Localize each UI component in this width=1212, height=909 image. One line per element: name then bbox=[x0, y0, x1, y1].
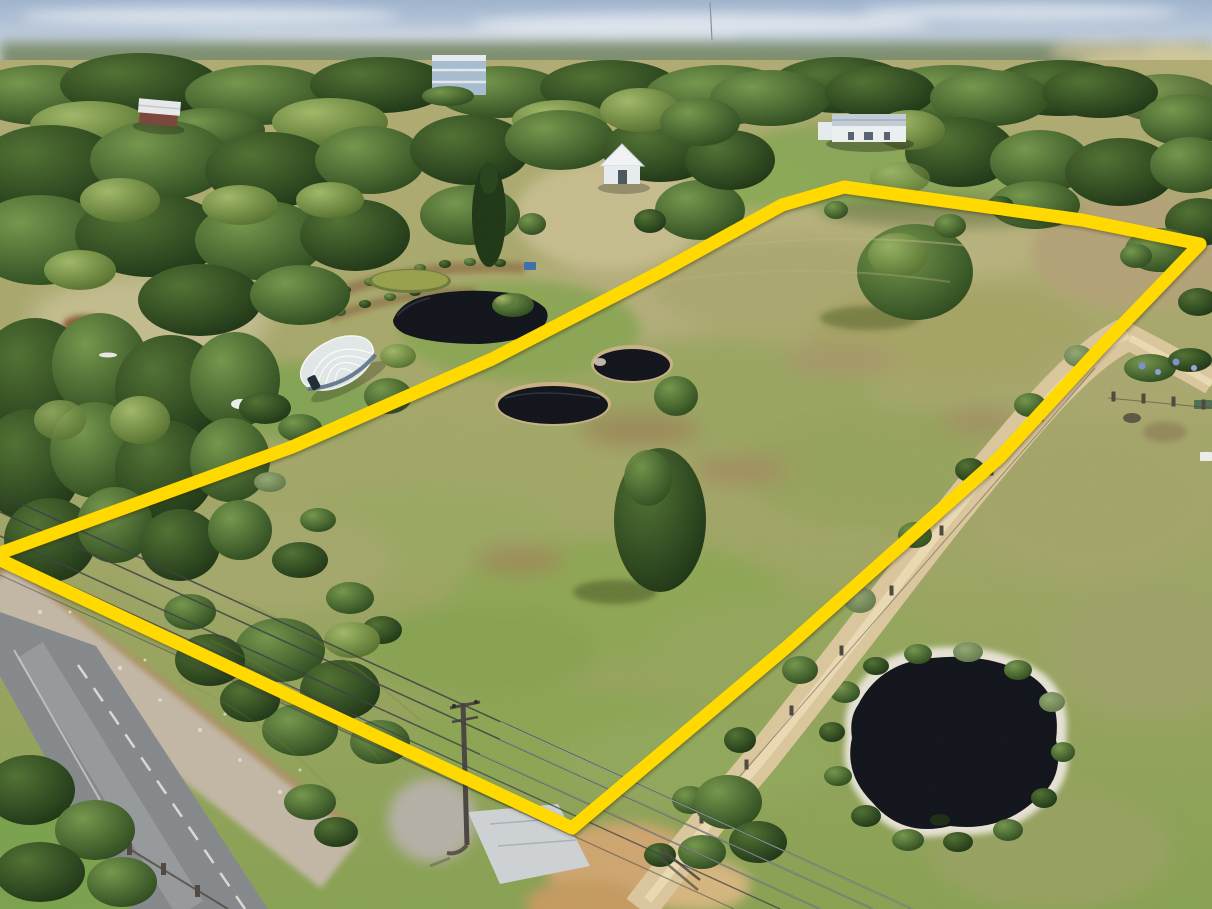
aerial-photo bbox=[0, 0, 1212, 909]
aerial-photo-frame bbox=[0, 0, 1212, 909]
photo-grain-overlay bbox=[0, 0, 1212, 909]
